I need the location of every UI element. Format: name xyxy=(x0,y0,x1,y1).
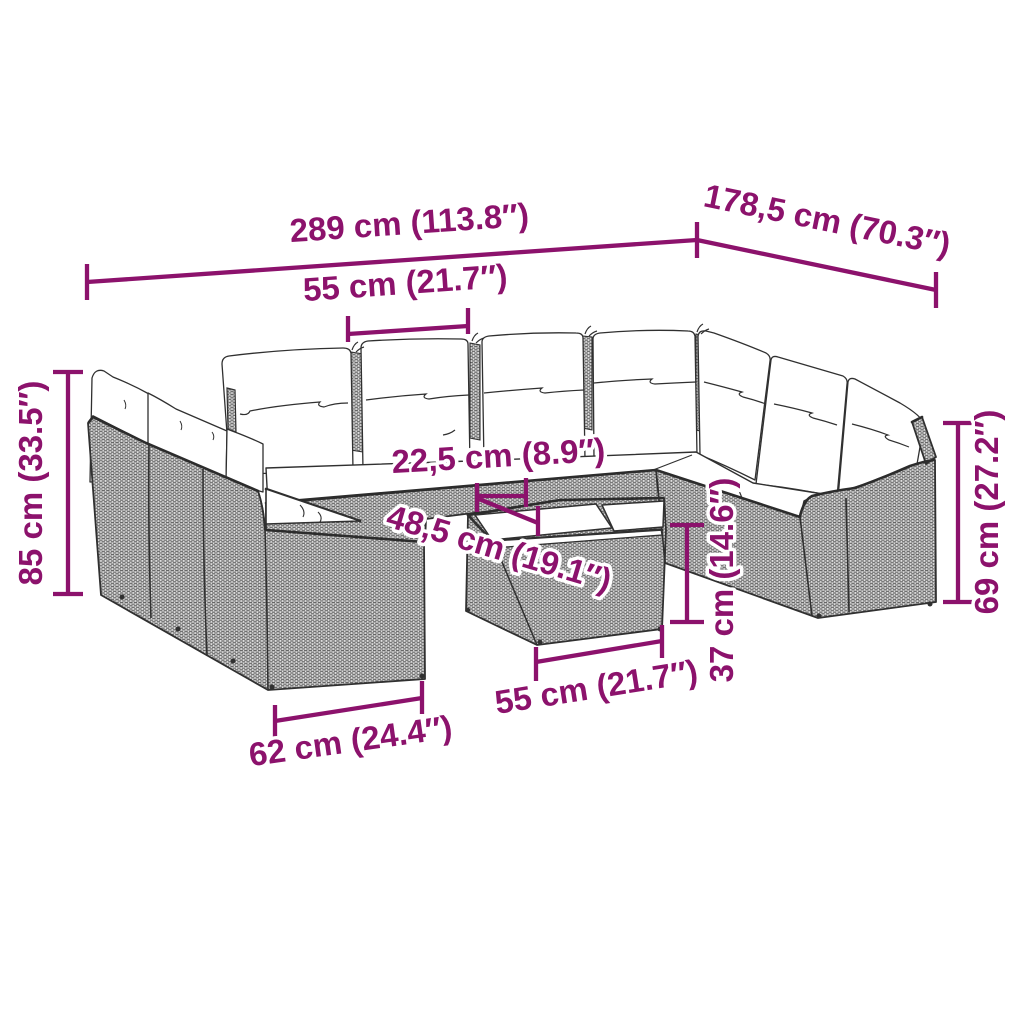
svg-text:69 cm (27.2″): 69 cm (27.2″) xyxy=(968,410,1005,615)
svg-text:85 cm (33.5″): 85 cm (33.5″) xyxy=(12,381,49,586)
svg-text:37 cm (14.6″): 37 cm (14.6″) xyxy=(703,478,740,683)
